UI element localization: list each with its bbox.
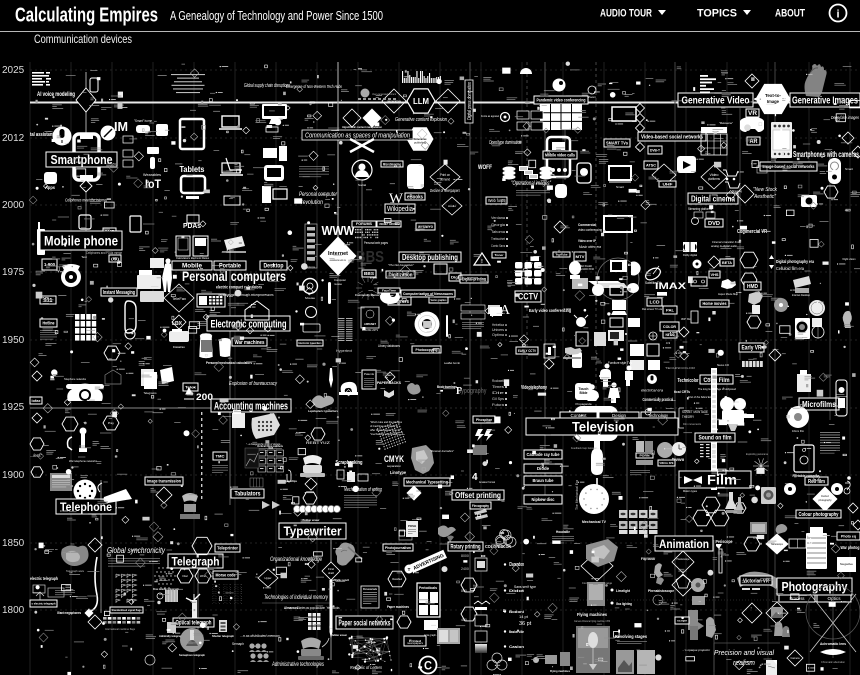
svg-text:Revolving stages: Revolving stages	[615, 634, 647, 640]
svg-text:Dolby digital: Dolby digital	[683, 253, 697, 257]
svg-text:Bible: Bible	[580, 391, 588, 395]
svg-text:Telex: Telex	[185, 384, 197, 389]
svg-text:Smart: Smart	[845, 167, 853, 171]
svg-text:"Personal Journalism": "Personal Journalism"	[430, 449, 455, 453]
svg-text:Digi: Digi	[451, 274, 459, 279]
svg-text:Toner: Toner	[495, 253, 505, 257]
svg-text:s electric telegraph: s electric telegraph	[32, 602, 56, 606]
svg-text:Classified: Classified	[392, 578, 403, 581]
svg-text:Calculators: Calculators	[176, 256, 191, 260]
svg-text:Film movements: Film movements	[683, 422, 702, 426]
svg-text:Rotary printing: Rotary printing	[451, 545, 481, 551]
svg-text:Tablets: Tablets	[180, 164, 205, 174]
svg-text:International maritime flags: International maritime flags	[105, 627, 136, 631]
svg-text:Celluloid film era: Celluloid film era	[776, 266, 805, 271]
svg-text:eBooks: eBooks	[407, 194, 423, 200]
svg-text:Mouse: Mouse	[305, 296, 315, 300]
svg-text:VHS: VHS	[711, 272, 719, 277]
svg-text:Sans serif type: Sans serif type	[514, 585, 536, 589]
svg-text:Negative: Negative	[840, 562, 853, 566]
svg-text:Music video era: Music video era	[579, 244, 602, 249]
svg-text:911: 911	[44, 298, 53, 304]
svg-text:4:3: 4:3	[666, 341, 671, 345]
svg-text:Leaflet bomb: Leaflet bomb	[444, 361, 460, 365]
svg-text:VR: VR	[748, 111, 758, 117]
svg-text:Trebuchet: Trebuchet	[491, 237, 505, 241]
svg-text:Photocopying: Photocopying	[416, 347, 438, 352]
svg-text:Telegrams: Telegrams	[144, 391, 157, 395]
svg-text:Generative Video: Generative Video	[682, 96, 750, 107]
svg-text:Content: Content	[571, 413, 588, 418]
svg-text:Helvetica: Helvetica	[492, 323, 504, 327]
svg-text:Pandemic video conferencing: Pandemic video conferencing	[537, 98, 586, 103]
svg-text:Teleprinter: Teleprinter	[217, 546, 238, 551]
svg-text:AUDIO TOUR: AUDIO TOUR	[600, 8, 652, 20]
svg-text:BETA: BETA	[722, 260, 732, 265]
svg-text:2025: 2025	[2, 65, 25, 76]
svg-text:Cellphones meet the internet: Cellphones meet the internet	[65, 198, 107, 204]
svg-text:REBTYUZ: REBTYUZ	[306, 442, 331, 446]
svg-text:Community Memory: Community Memory	[355, 293, 381, 297]
svg-text:T: T	[408, 567, 411, 572]
svg-text:Generative content explosion: Generative content explosion	[395, 117, 447, 123]
svg-text:Giant megaphones: Giant megaphones	[57, 611, 81, 615]
svg-text:EARLY CCTV: EARLY CCTV	[518, 349, 537, 353]
svg-text:The long Golden Age of Hollywo: The long Golden Age of Hollywood	[698, 387, 736, 391]
svg-text:CCTV: CCTV	[518, 292, 538, 302]
svg-text:MTV: MTV	[576, 254, 585, 259]
svg-text:War machines: War machines	[235, 340, 265, 346]
svg-text:ATSC: ATSC	[646, 163, 656, 167]
svg-text:Mobile phone: Mobile phone	[44, 233, 118, 249]
svg-text:Personal ads: Personal ads	[363, 587, 377, 591]
svg-text:photography: photography	[819, 498, 832, 502]
svg-text:-··- ·-: -··- ·-	[223, 602, 232, 604]
svg-text:WOFF: WOFF	[478, 165, 492, 171]
svg-text:Commercial: Commercial	[578, 223, 596, 227]
svg-text:AR: AR	[750, 139, 759, 145]
svg-text:Almanacs: Almanacs	[284, 606, 298, 610]
svg-text:Internet: Internet	[328, 251, 348, 257]
svg-text:newspapers: newspapers	[407, 641, 424, 645]
svg-text:Vector graphics: Vector graphics	[431, 298, 447, 302]
svg-text:Typewriter: Typewriter	[284, 524, 342, 539]
svg-text:VISUAL SPE: VISUAL SPE	[660, 461, 674, 465]
svg-text:Roll film: Roll film	[808, 479, 825, 485]
svg-text:Open/type domination: Open/type domination	[489, 140, 521, 146]
svg-text:Commercially practical...: Commercially practical...	[643, 397, 676, 402]
svg-text:Explosion of bureaucracy: Explosion of bureaucracy	[229, 381, 278, 387]
svg-text:Rockwell: Rockwell	[492, 379, 504, 383]
svg-text:Limelight: Limelight	[616, 589, 631, 593]
svg-text:Semaph: Semaph	[232, 642, 244, 646]
svg-text:Decline of newspapers: Decline of newspapers	[430, 188, 461, 193]
svg-text:TOPICS: TOPICS	[697, 8, 737, 20]
svg-text:ARPANET: ARPANET	[364, 322, 376, 326]
svg-text:1925: 1925	[2, 402, 25, 413]
svg-text:16mm film: 16mm film	[792, 429, 805, 433]
svg-text:Text-to-: Text-to-	[765, 93, 781, 98]
svg-text:PAL: PAL	[666, 307, 675, 312]
svg-text:Organizational knowledge: Organizational knowledge	[270, 556, 322, 563]
svg-text:Shutter telegraph: Shutter telegraph	[212, 634, 234, 638]
svg-text:Hyper: Hyper	[265, 576, 272, 580]
svg-text:Instant Messaging: Instant Messaging	[103, 290, 135, 296]
svg-text:Aspen Movie Map: Aspen Movie Map	[718, 292, 739, 296]
svg-text:Wikipedia: Wikipedia	[387, 206, 413, 213]
svg-text:...less": ...less"	[30, 453, 42, 458]
svg-text:Streaming platforms: Streaming platforms	[688, 207, 712, 211]
svg-text:Process: Process	[790, 596, 806, 601]
svg-text:Night vision: Night vision	[843, 257, 856, 261]
svg-text:-··- ·-: -··- ·-	[212, 602, 221, 604]
svg-text:mouse: mouse	[334, 282, 342, 286]
svg-text:Zoom: Zoom	[588, 95, 597, 99]
svg-text:platforms: platforms	[708, 177, 720, 181]
svg-text:Digital photography era: Digital photography era	[776, 259, 814, 264]
svg-text:IoT: IoT	[145, 177, 162, 191]
svg-text:Rubber eraser: Rubber eraser	[331, 633, 348, 637]
svg-text:Patents: Patents	[364, 372, 375, 376]
svg-text:Offset printing: Offset printing	[455, 490, 501, 500]
svg-text:200: 200	[196, 392, 213, 402]
svg-text:revolution: revolution	[301, 199, 323, 206]
svg-text:Optima: Optima	[492, 333, 504, 337]
svg-text:Phenakistoscope: Phenakistoscope	[648, 589, 674, 593]
svg-text:iofax: iofax	[32, 399, 41, 403]
svg-text:Admiralty telegraph: Admiralty telegraph	[159, 634, 183, 638]
svg-text:typography: typography	[460, 388, 487, 395]
svg-text:Exploding panorama: Exploding panorama	[746, 452, 769, 456]
svg-text:Semaphore telegraph: Semaphore telegraph	[179, 653, 205, 657]
svg-text:Microfilms: Microfilms	[802, 399, 836, 409]
svg-text:2400: 2400	[461, 567, 469, 571]
svg-text:PDAs: PDAs	[183, 223, 201, 230]
svg-text:Mechanical TV: Mechanical TV	[582, 520, 607, 524]
svg-text:Colour photography: Colour photography	[799, 512, 839, 518]
svg-text:TECHNICOLOR: TECHNICOLOR	[665, 366, 696, 370]
svg-text:Flying machines: Flying machines	[577, 612, 607, 618]
svg-text:War photog: War photog	[841, 545, 860, 550]
svg-text:Communication as spaces of man: Communication as spaces of manipulation	[305, 131, 410, 140]
svg-text:360° film: 360° film	[681, 317, 692, 321]
svg-text:8000: 8000	[461, 554, 469, 558]
svg-text:1850: 1850	[2, 538, 25, 549]
svg-text:Baskerville: Baskerville	[509, 630, 524, 634]
svg-text:Motion types: Motion types	[683, 489, 698, 493]
svg-text:Tahoma: Tahoma	[491, 230, 505, 234]
svg-text:Flat screen TV era: Flat screen TV era	[642, 307, 662, 311]
svg-text:Electronic typewriters: Electronic typewriters	[299, 341, 322, 345]
svg-text:1975: 1975	[2, 267, 25, 278]
svg-text:electrical era: electrical era	[641, 388, 664, 393]
svg-text:Audio: Audio	[448, 204, 456, 208]
svg-text:Flying machines: Flying machines	[550, 669, 570, 673]
svg-text:2012: 2012	[2, 133, 25, 144]
svg-text:c.1900: c.1900	[721, 554, 730, 557]
svg-text:Personal computer: Personal computer	[299, 191, 338, 198]
svg-text:Personal mechanical calculator: Personal mechanical calculators	[206, 360, 253, 365]
svg-text:IM: IM	[114, 119, 128, 134]
svg-text:scope: scope	[677, 619, 687, 623]
svg-text:Feedback loop between...: Feedback loop between...	[571, 446, 599, 450]
svg-text:LCD: LCD	[650, 300, 661, 305]
svg-text:draft: draft	[328, 571, 334, 575]
svg-text:Emergence of Non-Western Tech: Emergence of Non-Western Tech Hubs	[286, 84, 343, 89]
svg-text:Optical telegraph: Optical telegraph	[176, 621, 212, 627]
svg-text:BBS: BBS	[364, 271, 374, 276]
svg-text:Administrative technologies: Administrative technologies	[271, 662, 324, 668]
svg-text:Miniaturization through microp: Miniaturization through microprocessors	[219, 292, 274, 297]
svg-text:Stereo 3-D: Stereo 3-D	[717, 363, 729, 367]
svg-text:...n as distributed memory: ...n as distributed memory	[240, 634, 280, 638]
svg-text:Hotline: Hotline	[43, 321, 56, 326]
svg-text:Photojournalism: Photojournalism	[385, 546, 411, 550]
svg-text:Library databases: Library databases	[378, 344, 400, 348]
svg-text:Mechanization of writing: Mechanization of writing	[344, 487, 382, 493]
svg-text:Precision and visual: Precision and visual	[714, 650, 774, 657]
svg-text:Digital press domination: Digital press domination	[467, 82, 473, 120]
svg-text:Cathode ray tube: Cathode ray tube	[527, 452, 560, 457]
svg-text:Photo eq: Photo eq	[841, 533, 856, 538]
svg-text:Futura: Futura	[492, 403, 504, 407]
svg-text:Desktop publishing: Desktop publishing	[402, 253, 458, 262]
svg-text:Dial: Dial	[183, 574, 188, 578]
svg-text:LLM: LLM	[413, 97, 429, 106]
svg-text:Telegraph: Telegraph	[172, 554, 220, 568]
svg-text:Design: Design	[612, 413, 626, 418]
svg-text:UHF: UHF	[663, 182, 674, 186]
svg-text:Calculating Empires: Calculating Empires	[15, 5, 158, 27]
svg-text:LBX: LBX	[172, 321, 183, 327]
svg-text:Amateur format: Amateur format	[479, 480, 495, 484]
svg-text:Braun tube: Braun tube	[533, 478, 554, 483]
svg-text:POSH: POSH	[408, 524, 416, 528]
svg-text:HMD: HMD	[747, 284, 758, 290]
svg-text:Smartphones with cameras: Smartphones with cameras	[793, 150, 859, 159]
svg-text:electric compact calculators: electric compact calculators	[216, 285, 262, 290]
svg-text:Furniture style TVs: Furniture style TVs	[608, 361, 632, 365]
svg-text:Technology: Technology	[648, 413, 669, 418]
svg-text:WWII: WWII	[674, 458, 684, 462]
svg-text:Technologies of individual mem: Technologies of individual memory	[264, 595, 329, 601]
svg-text:Optics: Optics	[828, 596, 842, 601]
svg-text:demand: demand	[440, 178, 450, 182]
svg-text:Camera Obscura Flying machine: Camera Obscura Flying machine 1780	[574, 620, 611, 623]
svg-text:Houdaille: Houdaille	[556, 530, 570, 534]
svg-text:publishing: publishing	[414, 141, 426, 145]
svg-text:Times: Times	[492, 385, 504, 389]
svg-text:Clarendon: Clarendon	[509, 562, 524, 568]
svg-text:IMAX: IMAX	[655, 281, 686, 291]
svg-text:First: First	[328, 567, 334, 571]
svg-text:First of the Silent Era: First of the Silent Era	[688, 395, 712, 399]
svg-text:Standardized signal flags: Standardized signal flags	[112, 608, 142, 612]
svg-text:i: i	[836, 9, 839, 21]
svg-text:-··- ·-: -··- ·-	[234, 602, 243, 604]
svg-text:"Metaverse": "Metaverse"	[719, 121, 733, 125]
svg-text:4: 4	[472, 472, 478, 483]
svg-text:Comic Sans: Comic Sans	[491, 244, 505, 248]
svg-text:"The Net.Journalism": "The Net.Journalism"	[388, 263, 415, 267]
svg-text:TMC: TMC	[216, 453, 225, 458]
svg-text:A Genealogy of Technology and: A Genealogy of Technology and Power Sinc…	[170, 9, 383, 23]
svg-text:Sound on film: Sound on film	[699, 436, 732, 442]
svg-text:DVD: DVD	[708, 221, 720, 227]
svg-text:SMART TVs: SMART TVs	[606, 141, 629, 146]
svg-text:The Mechanical Era: The Mechanical Era	[575, 480, 579, 510]
svg-text:1950: 1950	[2, 335, 25, 346]
svg-text:tal assistants: tal assistants	[30, 132, 56, 138]
svg-text:Animation: Animation	[659, 537, 709, 551]
svg-text:Telephone networks: Telephone networks	[64, 377, 87, 381]
svg-text:Videotelephony: Videotelephony	[521, 385, 547, 391]
svg-text:Video over IP: Video over IP	[578, 239, 596, 243]
svg-text:Flexography: Flexography	[472, 504, 489, 508]
svg-text:Lepidopteric typewriters: Lepidopteric typewriters	[308, 409, 338, 413]
svg-text:Internet Desktop: Internet Desktop	[792, 293, 811, 297]
svg-text:Television: Television	[572, 419, 634, 435]
svg-text:ABOUT: ABOUT	[775, 8, 805, 20]
svg-text:Tabulators: Tabulators	[235, 492, 262, 498]
svg-text:Univers: Univers	[492, 328, 504, 332]
svg-text:Early VR: Early VR	[742, 346, 763, 352]
svg-text:electric telegraph: electric telegraph	[30, 576, 58, 581]
svg-text:PORN: PORN	[640, 454, 650, 458]
svg-text:Linotype: Linotype	[390, 470, 406, 475]
svg-text:Microblogging: Microblogging	[383, 162, 401, 166]
svg-text:2000: 2000	[2, 200, 25, 211]
svg-text:AI voice modeling: AI voice modeling	[37, 92, 75, 98]
svg-text:Fonts as apparel: Fonts as apparel	[481, 114, 499, 118]
svg-text:Die: Die	[492, 391, 504, 395]
svg-text:Smartphone: Smartphone	[51, 153, 113, 167]
svg-text:Verdana: Verdana	[491, 216, 505, 220]
svg-text:...'s opaque projector: ...'s opaque projector	[682, 648, 711, 652]
svg-text:video conferencing: video conferencing	[578, 228, 602, 232]
svg-text:Web fonts: Web fonts	[488, 198, 506, 203]
svg-text:Generative Images: Generative Images	[792, 96, 858, 107]
svg-text:Communication devices: Communication devices	[34, 32, 132, 46]
svg-text:Telegraph wars: Telegraph wars	[66, 569, 85, 573]
svg-text:Mechanical Typesetting: Mechanical Typesetting	[406, 480, 448, 485]
svg-text:Gas lighting: Gas lighting	[616, 602, 632, 606]
svg-text:FORUMS: FORUMS	[356, 222, 372, 226]
svg-text:1800: 1800	[2, 605, 25, 616]
svg-text:User-generated content: User-generated content	[372, 92, 396, 96]
svg-text:DVB-T: DVB-T	[650, 148, 661, 152]
svg-text:analog to digital audio: analog to digital audio	[711, 244, 737, 248]
svg-text:"Smart" home: "Smart" home	[134, 119, 152, 123]
svg-text:Hypertext: Hypertext	[336, 348, 353, 353]
svg-text:COLOR: COLOR	[663, 324, 676, 329]
svg-text:Caslon: Caslon	[509, 645, 524, 649]
svg-text:tical CRTs: tical CRTs	[674, 389, 691, 394]
svg-text:Periodicals: Periodicals	[419, 586, 437, 590]
svg-text:Achromatic lens: Achromatic lens	[820, 641, 847, 646]
svg-text:Wrist: Wrist	[200, 574, 206, 578]
svg-text:WWW: WWW	[322, 223, 356, 238]
svg-text:Morse code: Morse code	[216, 573, 236, 578]
svg-text:WYSIWYG: WYSIWYG	[418, 224, 433, 229]
svg-text:CMYK: CMYK	[384, 454, 404, 464]
svg-text:Social: Social	[358, 183, 366, 187]
svg-text:Camera: Camera	[791, 657, 801, 660]
svg-text:FaceTime: FaceTime	[382, 289, 396, 293]
svg-text:Phosphor: Phosphor	[476, 417, 492, 422]
svg-text:14 pt: 14 pt	[519, 614, 529, 619]
svg-text:Chromatic aberration: Chromatic aberration	[821, 660, 846, 664]
svg-text:Image: Image	[767, 99, 779, 104]
svg-text:Image transmission: Image transmission	[147, 479, 181, 484]
svg-text:Personal web pages: Personal web pages	[364, 241, 388, 245]
svg-text:Cellphones and PDAs merge: Cellphones and PDAs merge	[86, 251, 122, 255]
svg-text:1900: 1900	[2, 470, 25, 481]
svg-text:Global supply chain disruption: Global supply chain disruptions	[244, 83, 290, 89]
svg-text:Victorian VR: Victorian VR	[743, 578, 769, 584]
svg-text:C: C	[424, 659, 432, 673]
svg-text:"New Stock: "New Stock	[753, 187, 777, 193]
svg-text:36 pt: 36 pt	[519, 621, 532, 627]
svg-text:Paper machines: Paper machines	[387, 605, 409, 609]
svg-text:Video-based social networks: Video-based social networks	[641, 134, 703, 140]
svg-text:Gil Sps: Gil Sps	[492, 397, 504, 401]
svg-text:Electronic Diaries: Electronic Diaries	[191, 256, 209, 260]
svg-text:Digital cinema: Digital cinema	[691, 194, 735, 203]
svg-text:Periscope: Periscope	[716, 539, 733, 544]
svg-text:Print on: Print on	[440, 173, 450, 177]
svg-text:Commercial VR: Commercial VR	[737, 229, 767, 235]
svg-text:Paper social networks: Paper social networks	[339, 618, 391, 627]
svg-text:Propaganda: Propaganda	[576, 402, 592, 406]
svg-text:Smart: Smart	[616, 185, 624, 189]
svg-text:Pay: Pay	[108, 421, 115, 425]
svg-text:Datafax: Datafax	[173, 345, 186, 349]
svg-text:Accounting machines: Accounting machines	[214, 401, 288, 413]
svg-text:Praxinoscope: Praxinoscope	[677, 558, 691, 561]
svg-text:separation: separation	[387, 464, 401, 468]
svg-text:THEORY: THEORY	[682, 415, 695, 419]
svg-text:Text: Text	[81, 255, 87, 259]
svg-text:Technicolor: Technicolor	[678, 378, 699, 384]
svg-text:Home movies: Home movies	[703, 301, 728, 306]
svg-text:Aesthetic": Aesthetic"	[753, 194, 776, 200]
svg-text:War telephone networks: War telephone networks	[69, 459, 97, 463]
